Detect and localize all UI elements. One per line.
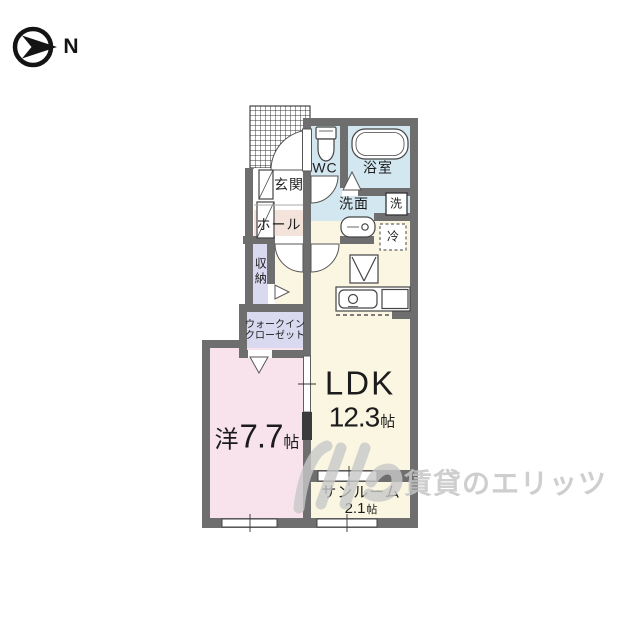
sink-faucet (349, 295, 358, 304)
ldk-size-label: 12.3 帖 (329, 402, 396, 431)
sunroom-size-label: 2.1 帖 (345, 501, 378, 517)
wall-top (303, 118, 418, 126)
compass-arrow-icon (22, 36, 57, 59)
wall-storage-right (267, 242, 275, 284)
watermark-text: 賃貸のエリッツ (404, 462, 607, 502)
storage-label: 収納 (254, 257, 267, 287)
bathroom-label: 浴室 (363, 161, 393, 176)
compass-north-label: N (63, 36, 78, 58)
entrance-label: 玄関 (274, 178, 304, 193)
washer-label: 洗 (390, 198, 402, 211)
wall-storage-bottom (243, 304, 311, 312)
wic-label-line2: クローゼット (245, 331, 305, 342)
wic-label-line1: ウォークイン (245, 321, 305, 332)
wall-wc-bath (340, 126, 348, 188)
toilet-bowl-icon (318, 139, 334, 161)
floorplan-page: N 玄関 ホール WC 浴室 洗面 洗 冷 収納 ウォークイン クローゼット 洋… (0, 0, 640, 640)
counter-top-icon (382, 290, 408, 309)
bedroom-prefix: 洋 (215, 428, 239, 453)
sunroom-label: サンルーム (321, 485, 401, 501)
fridge-label: 冷 (387, 231, 399, 244)
washbasin-faucet (362, 224, 368, 230)
ldk-label: LDK (325, 367, 395, 402)
sunroom-unit: 帖 (366, 505, 377, 517)
ldk-unit: 帖 (380, 414, 395, 430)
sunroom-inner-window (318, 471, 377, 481)
hall-label: ホール (257, 218, 302, 233)
wall-bedroom-left (202, 340, 210, 528)
bedroom-unit: 帖 (283, 436, 299, 453)
bedroom-size: 7.7 (240, 420, 283, 455)
wc-label: WC (312, 161, 337, 176)
bedroom-label: 洋 7.7 帖 (215, 420, 300, 455)
ldk-size: 12.3 (329, 402, 380, 431)
entrance-door-leaf (303, 129, 312, 171)
sliding-door-rail (302, 412, 312, 440)
range-icon (350, 255, 378, 283)
sunroom-size: 2.1 (345, 501, 366, 517)
toilet-tank-icon (316, 127, 336, 139)
washroom-label: 洗面 (339, 197, 369, 212)
walk-in-closet-label: ウォークイン クローゼット (245, 321, 305, 342)
bathtub-icon (352, 129, 408, 159)
compass (0, 0, 120, 100)
